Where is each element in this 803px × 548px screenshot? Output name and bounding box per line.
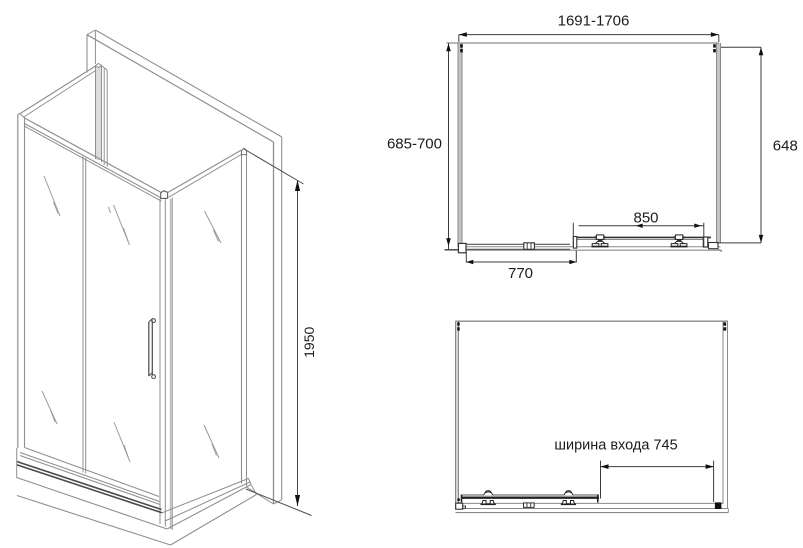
svg-text:1950: 1950	[301, 327, 317, 358]
svg-text:1691-1706: 1691-1706	[558, 13, 630, 30]
svg-text:770: 770	[508, 265, 533, 282]
svg-text:648: 648	[773, 137, 798, 154]
svg-text:685-700: 685-700	[387, 135, 442, 152]
svg-text:850: 850	[633, 210, 658, 227]
svg-text:ширина входа 745: ширина входа 745	[554, 438, 677, 454]
